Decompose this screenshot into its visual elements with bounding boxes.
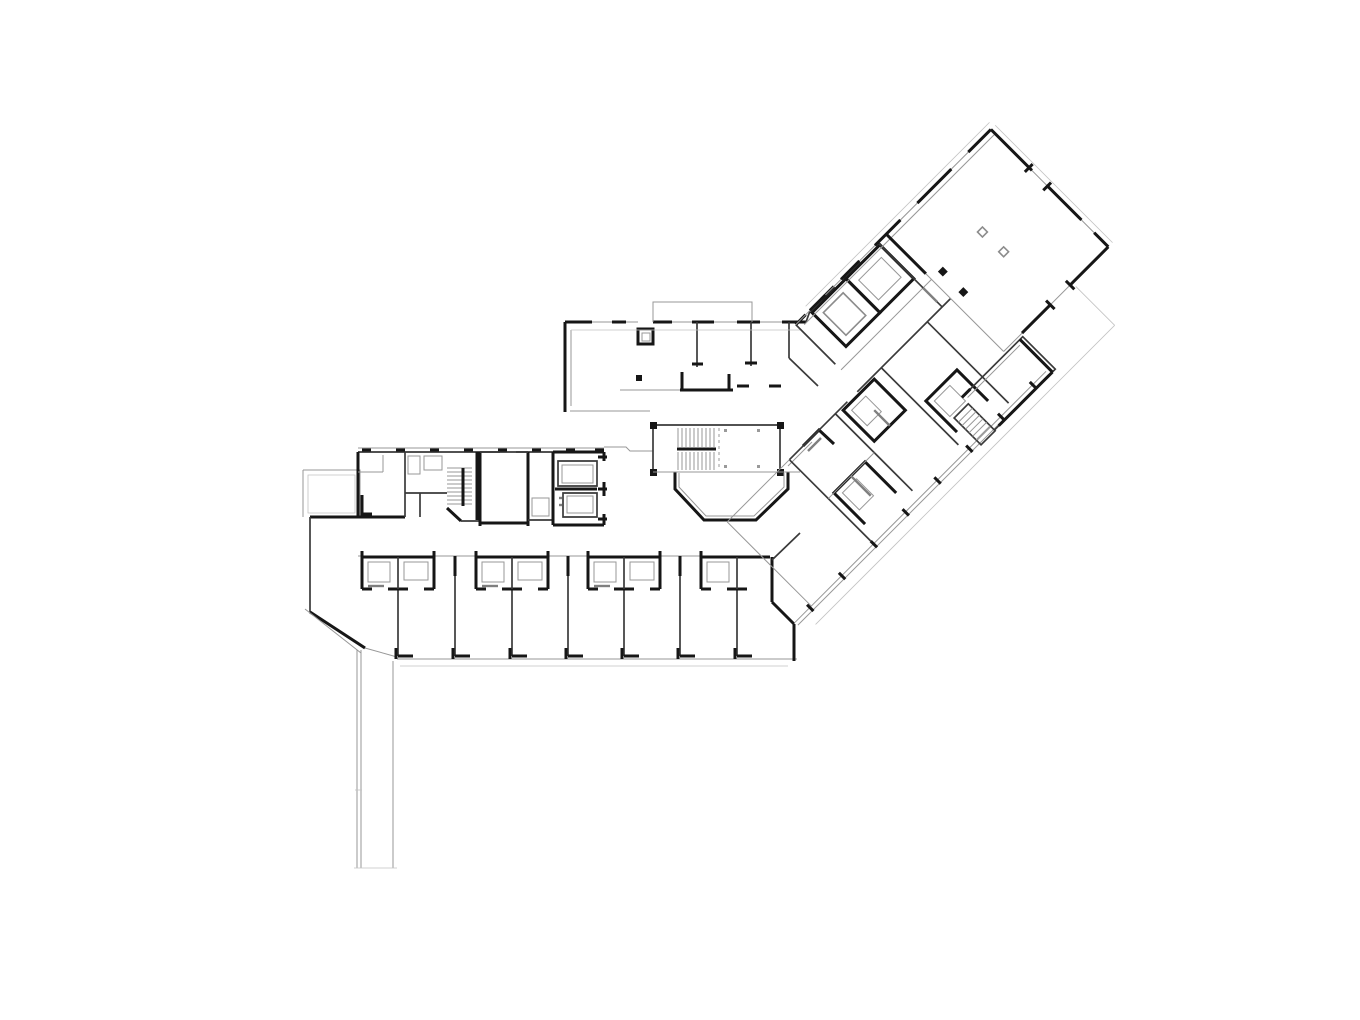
lobby-and-north-wing [565, 302, 818, 412]
site-outline-and-terrace [303, 470, 405, 868]
floor-plan-canvas [0, 0, 1360, 1020]
angled-wing [647, 166, 1115, 634]
floor-plan-drawing [0, 0, 1360, 1020]
core-stair-and-elevators [358, 447, 653, 526]
main-stair-hall [650, 422, 834, 520]
bottom-wing [358, 533, 800, 666]
